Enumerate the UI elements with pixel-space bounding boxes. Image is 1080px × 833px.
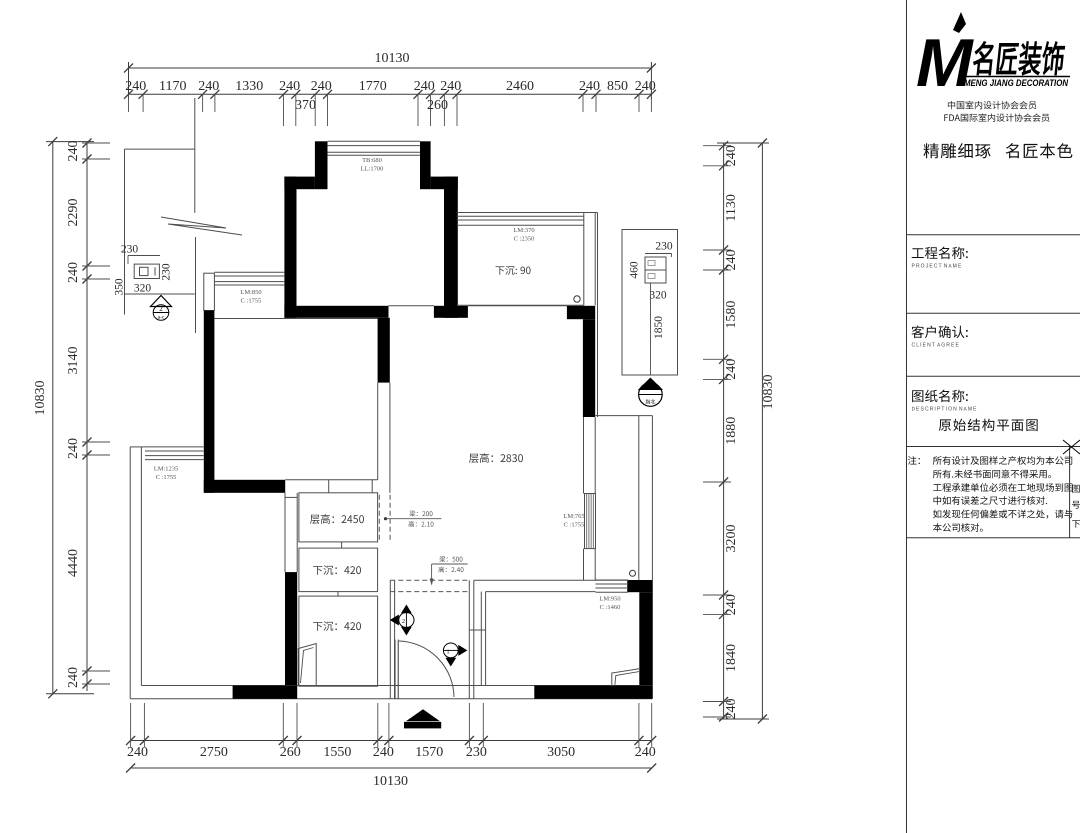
svg-text:层高：2830: 层高：2830: [469, 451, 524, 466]
svg-text:1130: 1130: [724, 194, 739, 221]
svg-text:2: 2: [159, 305, 163, 313]
svg-text:240: 240: [579, 79, 600, 94]
svg-text:3050: 3050: [547, 745, 575, 760]
svg-text:图: 图: [1071, 482, 1080, 495]
svg-text:850: 850: [607, 79, 628, 94]
svg-text:C :1755: C :1755: [156, 474, 177, 481]
svg-text:工程名称:: 工程名称:: [911, 242, 969, 262]
svg-text:LM:765: LM:765: [563, 513, 584, 520]
svg-text:C :1755: C :1755: [564, 522, 585, 529]
svg-text:高：2.40: 高：2.40: [438, 564, 464, 574]
svg-text:240: 240: [635, 79, 656, 94]
svg-text:320: 320: [134, 283, 152, 295]
svg-text:如发现任何偏差或不详之处，请与: 如发现任何偏差或不详之处，请与: [933, 507, 1074, 521]
svg-text:号: 号: [1071, 498, 1080, 511]
svg-text:240: 240: [198, 79, 219, 94]
svg-text:230: 230: [121, 244, 139, 256]
svg-text:240: 240: [373, 745, 394, 760]
svg-text:1770: 1770: [359, 79, 387, 94]
svg-text:240: 240: [414, 79, 435, 94]
svg-text:本公司核对。: 本公司核对。: [933, 520, 989, 534]
svg-text:10130: 10130: [373, 774, 408, 789]
svg-text:260: 260: [280, 745, 301, 760]
svg-text:高：2.10: 高：2.10: [408, 519, 434, 529]
svg-text:320: 320: [649, 290, 667, 302]
svg-text:1330: 1330: [235, 79, 263, 94]
svg-text:LM:1235: LM:1235: [154, 466, 179, 473]
svg-text:10830: 10830: [33, 381, 48, 416]
svg-text:梁：200: 梁：200: [409, 508, 433, 518]
svg-text:1880: 1880: [724, 417, 739, 445]
svg-text:C :1460: C :1460: [600, 604, 621, 611]
svg-text:1840: 1840: [724, 644, 739, 672]
svg-text:4440: 4440: [66, 549, 81, 577]
svg-text:C L I E N T A G R E E: C L I E N T A G R E E: [912, 342, 960, 349]
svg-text:C :1755: C :1755: [241, 298, 262, 305]
svg-text:MENG JIANG DECORATION: MENG JIANG DECORATION: [964, 78, 1069, 89]
svg-text:M: M: [916, 25, 974, 101]
svg-text:层高：2450: 层高：2450: [310, 512, 365, 527]
svg-text:240: 240: [279, 79, 300, 94]
svg-text:230: 230: [161, 263, 173, 281]
svg-text:260: 260: [427, 98, 448, 113]
svg-text:TB:680: TB:680: [362, 157, 382, 164]
svg-text:LM:950: LM:950: [599, 596, 620, 603]
svg-text:230: 230: [466, 745, 487, 760]
svg-text:LM:850: LM:850: [240, 289, 261, 296]
svg-text:LM:370: LM:370: [513, 227, 534, 234]
svg-text:C :2350: C :2350: [514, 236, 535, 243]
svg-text:下沉: 90: 下沉: 90: [495, 262, 532, 277]
svg-text:指北: 指北: [645, 399, 655, 406]
svg-text:10130: 10130: [375, 51, 410, 66]
svg-text:a-c: a-c: [158, 315, 165, 321]
svg-text:3140: 3140: [66, 347, 81, 375]
svg-text:下沉：420: 下沉：420: [313, 563, 362, 578]
svg-text:下沉：420: 下沉：420: [313, 619, 362, 634]
svg-text:所有.未经书面同意不得采用。: 所有.未经书面同意不得采用。: [933, 466, 1057, 480]
svg-text:名匠装饰: 名匠装饰: [970, 31, 1067, 83]
svg-text:240: 240: [66, 262, 81, 283]
svg-text:客户确认:: 客户确认:: [911, 321, 969, 341]
svg-text:240: 240: [66, 438, 81, 459]
svg-text:3200: 3200: [724, 525, 739, 553]
svg-text:240: 240: [440, 79, 461, 94]
svg-text:1550: 1550: [323, 745, 351, 760]
svg-text:230: 230: [655, 241, 673, 253]
svg-text:1170: 1170: [159, 79, 186, 94]
svg-text:240: 240: [724, 145, 739, 166]
svg-text:D E S C R I P T I O N N A M E: D E S C R I P T I O N N A M E: [912, 406, 978, 413]
svg-text:240: 240: [125, 79, 146, 94]
svg-text:中国室内设计协会会员: 中国室内设计协会会员: [947, 99, 1037, 112]
svg-text:1: 1: [447, 650, 450, 656]
svg-text:精雕细琢 名匠本色: 精雕细琢 名匠本色: [923, 138, 1073, 162]
svg-text:下: 下: [1071, 517, 1080, 530]
svg-text:350: 350: [114, 278, 126, 296]
svg-text:1850: 1850: [653, 316, 665, 339]
svg-text:所有设计及图样之产权均为本公司: 所有设计及图样之产权均为本公司: [933, 453, 1074, 467]
svg-text:2460: 2460: [506, 79, 534, 94]
svg-text:240: 240: [66, 141, 81, 162]
svg-text:240: 240: [724, 359, 739, 380]
svg-text:2: 2: [402, 619, 405, 625]
svg-text:梁：500: 梁：500: [439, 554, 463, 564]
svg-text:注：: 注：: [908, 453, 927, 467]
svg-text:10830: 10830: [761, 375, 776, 410]
svg-text:工程承建单位必须在工地现场到图: 工程承建单位必须在工地现场到图: [933, 480, 1074, 494]
svg-text:LL:1700: LL:1700: [361, 166, 384, 173]
svg-text:图纸名称:: 图纸名称:: [911, 385, 969, 405]
svg-text:P R O J E C T N A M E: P R O J E C T N A M E: [912, 263, 962, 270]
svg-text:FDA国际室内设计协会会员: FDA国际室内设计协会会员: [943, 111, 1050, 124]
svg-text:240: 240: [66, 667, 81, 688]
svg-text:240: 240: [724, 594, 739, 615]
svg-text:460: 460: [629, 261, 641, 279]
svg-text:240: 240: [724, 250, 739, 271]
svg-text:中如有误差之尺寸进行核对.: 中如有误差之尺寸进行核对.: [933, 493, 1048, 507]
svg-text:2750: 2750: [200, 745, 228, 760]
svg-text:原始结构平面图: 原始结构平面图: [938, 414, 1040, 434]
svg-text:240: 240: [127, 745, 148, 760]
svg-text:370: 370: [295, 98, 316, 113]
svg-text:1580: 1580: [724, 301, 739, 329]
svg-text:240: 240: [635, 745, 656, 760]
svg-text:240: 240: [724, 699, 739, 720]
svg-text:1570: 1570: [415, 745, 443, 760]
svg-text:2290: 2290: [66, 199, 81, 227]
svg-text:240: 240: [311, 79, 332, 94]
